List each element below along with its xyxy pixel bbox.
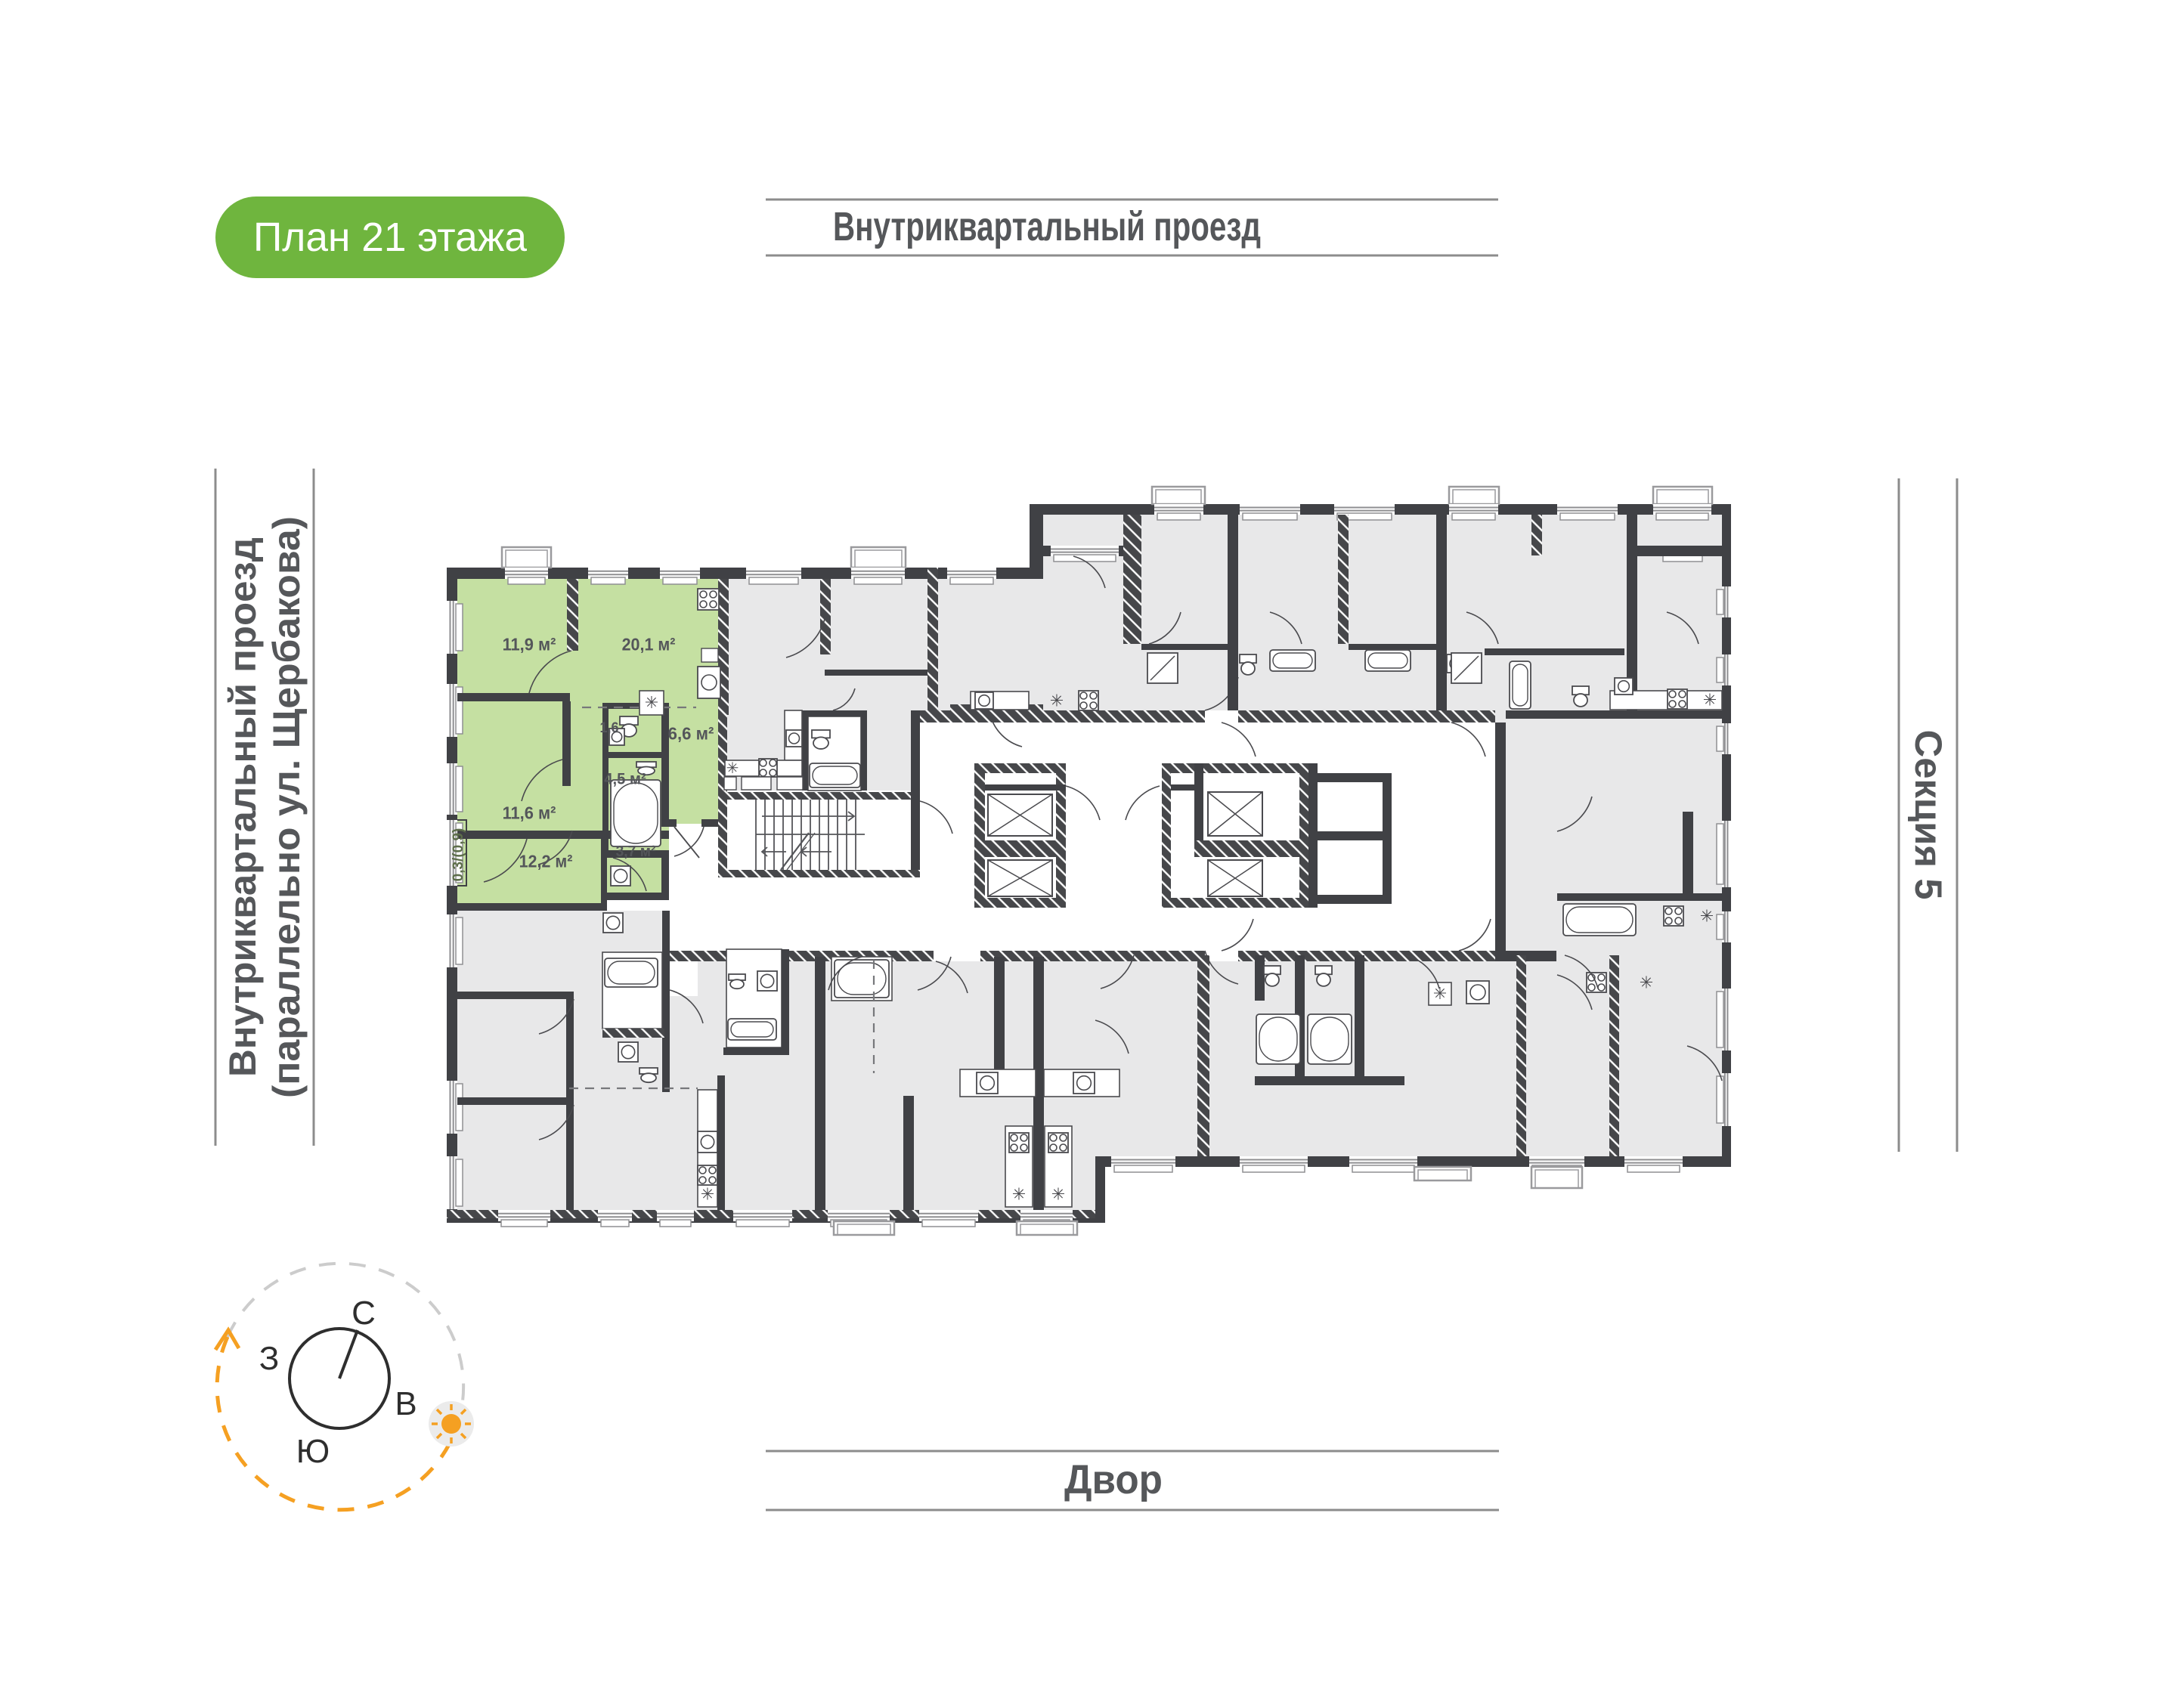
- svg-text:✳: ✳: [1640, 973, 1653, 992]
- svg-text:✳: ✳: [726, 760, 739, 777]
- svg-text:12,2 м²: 12,2 м²: [519, 851, 573, 871]
- svg-text:Двор: Двор: [1064, 1457, 1163, 1502]
- svg-text:✳: ✳: [1012, 1185, 1026, 1204]
- svg-text:Внутриквартальный проезд: Внутриквартальный проезд: [833, 204, 1261, 249]
- svg-text:✳: ✳: [1700, 907, 1714, 926]
- svg-text:Секция 5: Секция 5: [1907, 730, 1949, 900]
- svg-text:Ю: Ю: [296, 1433, 330, 1470]
- svg-text:1,6: 1,6: [599, 720, 618, 736]
- svg-text:План 21 этажа: План 21 этажа: [253, 215, 528, 260]
- svg-text:✳: ✳: [701, 1185, 714, 1204]
- svg-text:11,6 м²: 11,6 м²: [503, 803, 556, 822]
- svg-text:(параллельно ул. Щербакова): (параллельно ул. Щербакова): [265, 516, 308, 1098]
- svg-text:С: С: [351, 1295, 376, 1332]
- svg-text:Внутриквартальный проезд: Внутриквартальный проезд: [221, 537, 264, 1077]
- svg-text:✳: ✳: [1051, 1185, 1065, 1204]
- svg-text:✳: ✳: [1433, 984, 1447, 1003]
- svg-text:11,9 м²: 11,9 м²: [503, 634, 556, 654]
- svg-text:✳: ✳: [1703, 691, 1717, 710]
- svg-text:✳: ✳: [1050, 692, 1064, 710]
- svg-text:З: З: [259, 1340, 280, 1377]
- svg-text:4,5 м²: 4,5 м²: [604, 771, 646, 788]
- svg-text:В: В: [395, 1385, 417, 1422]
- svg-text:✳: ✳: [645, 693, 658, 712]
- svg-text:20,1 м²: 20,1 м²: [622, 634, 676, 654]
- svg-text:3,7 м²: 3,7 м²: [616, 843, 656, 860]
- svg-text:0,3/(0,9): 0,3/(0,9): [451, 828, 466, 882]
- svg-text:6,6 м²: 6,6 м²: [668, 723, 714, 743]
